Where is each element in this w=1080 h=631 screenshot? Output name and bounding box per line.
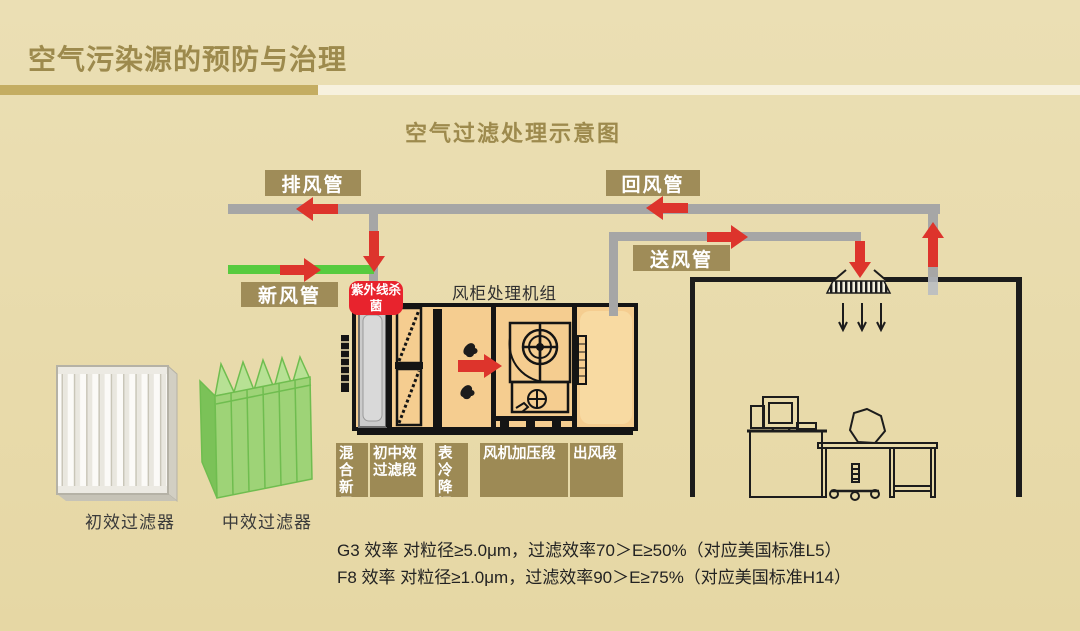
supply-duct-label: 送风管	[633, 245, 730, 271]
ahu-title: 风柜处理机组	[452, 280, 557, 304]
filter-caption-medium: 中效过滤器	[222, 508, 312, 533]
exhaust-duct-label: 排风管	[265, 170, 361, 196]
exhaust-arrow	[296, 197, 338, 221]
ahu-section-label-filter: 初中效过滤段	[370, 443, 423, 497]
return-grille-stub	[928, 277, 938, 295]
return-up-arrow	[922, 222, 944, 267]
fresh-air-duct-label: 新风管	[241, 282, 338, 307]
office-chair	[830, 409, 885, 500]
fresh-arrow	[280, 258, 321, 282]
mixing-section-panel	[359, 309, 386, 427]
ahu-section-label-cooling: 表冷降温段	[435, 443, 468, 497]
ahu-section-label-mixing: 混合新风段	[336, 443, 368, 497]
bag-filter-photo	[200, 357, 312, 498]
ahu-section-label-outlet: 出风段	[570, 443, 623, 497]
uv-sterilizer-badge: 紫外线杀菌	[349, 281, 403, 315]
room-airflow-arrows	[839, 303, 885, 330]
intake-grille	[341, 335, 349, 392]
connector-strip	[578, 336, 586, 384]
office-furniture	[747, 397, 937, 500]
return-arrow	[646, 196, 688, 220]
filter-caption-primary: 初效过滤器	[85, 508, 175, 533]
slide-canvas: 空气污染源的预防与治理 空气过滤处理示意图	[0, 0, 1080, 631]
panel-filter-bar	[433, 309, 442, 428]
office-desk	[747, 431, 937, 497]
note-g3-efficiency: G3 效率 对粒径≥5.0μm，过滤效率70＞E≥50%（对应美国标准L5）	[337, 536, 842, 561]
primary-filter-photo	[57, 366, 177, 501]
return-duct-label: 回风管	[606, 170, 700, 196]
ahu-section-label-fan: 风机加压段	[480, 443, 568, 497]
note-f8-efficiency: F8 效率 对粒径≥1.0μm，过滤效率90＞E≥75%（对应美国标准H14）	[337, 563, 851, 588]
crt-monitor	[751, 397, 816, 431]
